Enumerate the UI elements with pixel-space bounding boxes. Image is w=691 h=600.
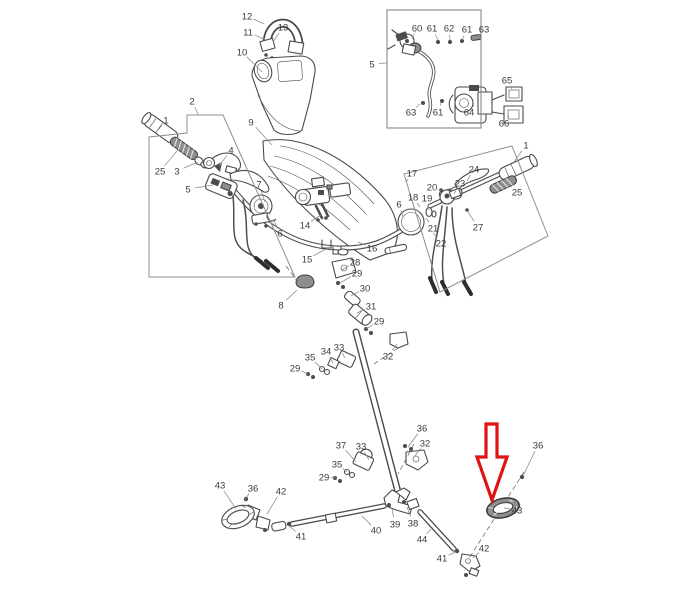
part-label-43: 43: [215, 481, 226, 492]
leader-line-part-40: [362, 516, 371, 525]
exploded-diagram-canvas: 1211131029125345761415168282930312933343…: [0, 0, 691, 600]
leader-line-part-2: [195, 107, 198, 114]
leader-line-part-27: [468, 212, 474, 221]
leader-line-part-8: [286, 290, 297, 300]
part-label-23: 23: [455, 179, 466, 190]
part-label-5: 5: [369, 60, 374, 71]
part-label-12: 12: [242, 12, 253, 23]
part-label-1: 1: [163, 116, 168, 127]
leader-line-part-37: [346, 450, 356, 462]
part-label-36: 36: [417, 424, 428, 435]
part-label-20: 20: [427, 183, 438, 194]
part-label-63: 63: [479, 25, 490, 36]
leader-line-part-21: [426, 218, 429, 222]
part-label-62: 62: [444, 24, 455, 35]
part-label-33: 33: [334, 343, 345, 354]
part-label-35: 35: [305, 353, 316, 364]
part-label-13: 13: [278, 23, 289, 34]
part-label-27: 27: [473, 223, 484, 234]
parts-diagram-page: 1211131029125345761415168282930312933343…: [0, 0, 691, 600]
part-label-44: 44: [417, 535, 428, 546]
leader-line-part-36: [408, 434, 418, 447]
part-label-37: 37: [336, 441, 347, 452]
part-label-9: 9: [248, 118, 253, 129]
pod-cover-drawing: [252, 56, 316, 135]
leader-line-part-42: [267, 497, 277, 514]
leader-line-part-25: [165, 150, 178, 166]
part-label-6: 6: [396, 200, 401, 211]
part-label-29: 29: [352, 269, 363, 280]
leader-line-part-29: [340, 277, 351, 283]
ring-part-43-left: [218, 501, 257, 533]
leader-line-part-61: [440, 103, 441, 105]
leader-line-part-39: [392, 509, 394, 517]
part-label-22: 22: [436, 239, 447, 250]
part-label-41: 41: [296, 532, 307, 543]
leader-line-part-61: [435, 34, 438, 40]
part-label-31: 31: [366, 302, 377, 313]
leader-line-part-12: [253, 19, 264, 24]
part-label-35: 35: [332, 460, 343, 471]
part-label-21: 21: [428, 224, 439, 235]
part-label-8: 8: [278, 301, 283, 312]
part-label-33: 33: [356, 442, 367, 453]
part-label-10: 10: [237, 48, 248, 59]
part-label-25: 25: [155, 167, 166, 178]
leader-line-part-15: [313, 248, 328, 256]
part-label-6: 6: [277, 229, 282, 240]
part-label-14: 14: [300, 221, 311, 232]
part-label-19: 19: [422, 194, 433, 205]
part-label-15: 15: [302, 255, 313, 266]
highlight-arrow: [477, 424, 507, 500]
part-label-40: 40: [371, 526, 382, 537]
part-label-24: 24: [469, 165, 480, 176]
part-label-17: 17: [407, 169, 418, 180]
part-label-25: 25: [512, 188, 523, 199]
part-label-42: 42: [276, 487, 287, 498]
part-label-3: 3: [174, 167, 179, 178]
part-label-60: 60: [412, 24, 423, 35]
part-label-32: 32: [383, 352, 394, 363]
part-label-11: 11: [243, 28, 253, 39]
part-label-61: 61: [427, 24, 438, 35]
part-label-63: 63: [406, 108, 417, 119]
part-label-66: 66: [499, 119, 510, 130]
part-label-2: 2: [189, 97, 194, 108]
leader-line-part-36: [523, 451, 535, 476]
part-label-32: 32: [420, 439, 431, 450]
part-label-39: 39: [390, 520, 401, 531]
part-label-36: 36: [248, 484, 259, 495]
part-label-16: 16: [367, 244, 378, 255]
part-label-61: 61: [462, 25, 473, 36]
part-label-5: 5: [185, 185, 190, 196]
part-label-29: 29: [374, 317, 385, 328]
part-label-29: 29: [319, 473, 330, 484]
part-label-1: 1: [523, 141, 528, 152]
part-label-36: 36: [533, 441, 544, 452]
part-label-4: 4: [228, 146, 233, 157]
leader-line-part-44: [427, 529, 431, 534]
part-label-29: 29: [290, 364, 301, 375]
part-label-41: 41: [437, 554, 448, 565]
part-label-61: 61: [433, 108, 444, 119]
part-label-38: 38: [408, 519, 419, 530]
leader-line-part-5: [379, 63, 387, 64]
leader-line-part-13: [273, 33, 279, 42]
part-label-34: 34: [321, 347, 332, 358]
left-grip-spring: [169, 136, 199, 162]
part-label-7: 7: [256, 180, 261, 191]
leader-line-part-3: [183, 162, 198, 168]
part-label-28: 28: [350, 258, 361, 269]
cap-part-8: [296, 275, 314, 288]
leader-line-part-63: [416, 104, 420, 107]
part-label-18: 18: [408, 193, 419, 204]
leader-line-part-41: [448, 552, 456, 555]
part-label-42: 42: [479, 544, 490, 555]
leader-line-part-43: [224, 491, 236, 509]
part-label-65: 65: [502, 76, 513, 87]
part-label-43: 43: [512, 506, 523, 517]
part-label-30: 30: [360, 284, 371, 295]
part-label-64: 64: [464, 108, 475, 119]
leader-line-part-35: [315, 362, 322, 369]
leader-line-part-4: [219, 156, 227, 166]
